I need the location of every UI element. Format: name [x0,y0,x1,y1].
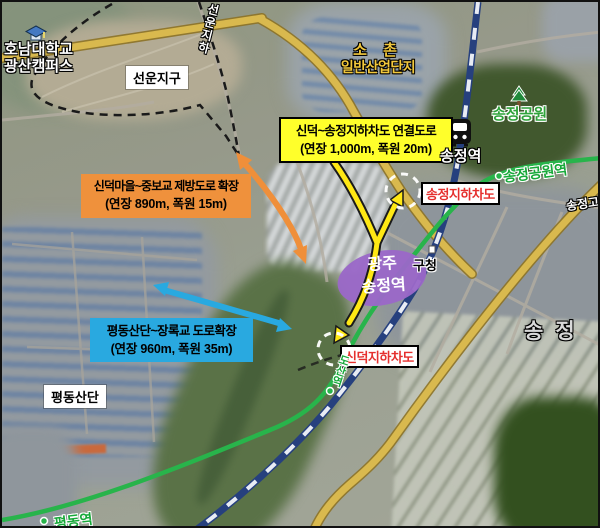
pyeongdong-road-line2: (연장 960m, 폭원 35m) [90,340,253,358]
seonun-district-label: 선운지구 [126,66,188,89]
embankment-road-line2: (연장 890m, 폭원 15m) [81,195,251,213]
pyeongdong-complex-text: 평동산단 [51,390,99,405]
embankment-road-callout: 신덕마을~중보교 제방도로 확장 (연장 890m, 폭원 15m) [81,174,251,218]
sochon-line2: 일반산업단지 [330,59,426,75]
university-label: 호남대학교 광산캠퍼스 [4,41,73,75]
gu-office-label: 구청 [413,255,437,274]
university-line1: 호남대학교 [4,41,73,58]
university-line2: 광산캠퍼스 [4,58,73,75]
map-screenshot: 호남대학교 광산캠퍼스 선운지구 선운지하 소 촌 일반산업단지 송정공원 신덕… [0,0,600,528]
sochon-complex-label: 소 촌 일반산업단지 [330,43,426,75]
pyeongdong-station-label: 평동역 [53,509,94,528]
songjeong-station-text: 송정역 [440,148,481,165]
graduation-cap-icon [26,26,46,40]
seonun-district-text: 선운지구 [133,71,181,86]
songjeong-faint-label: 송정 [524,315,587,345]
annotation-layer [2,2,600,528]
songjeong-faint-text: 송정 [524,320,587,343]
sochon-line1: 소 촌 [330,43,426,59]
sindeok-underpass-text: 신덕지하차도 [345,350,414,365]
pyeongdong-complex-label: 평동산단 [44,385,106,408]
songjeong-station-label: 송정역 [440,145,481,166]
connect-road-line2: (연장 1,000m, 폭원 20m) [281,140,451,158]
pyeongdong-road-line1: 평동산단~장록교 도로확장 [90,322,253,340]
connect-road-callout: 신덕~송정지하차도 연결도로 (연장 1,000m, 폭원 20m) [279,117,453,163]
songjeong-park-label: 송정공원 [492,103,547,124]
pyeongdong-station-text: 평동역 [53,511,93,528]
embankment-road-line1: 신덕마을~중보교 제방도로 확장 [81,178,251,195]
blue-arrowhead-left [153,282,169,296]
songjeong-underpass-label: 송정지하차도 [421,182,500,205]
gu-office-text: 구청 [413,258,437,273]
building-icon [429,246,435,253]
songjeong-park-text: 송정공원 [492,106,547,123]
songjeong-underpass-text: 송정지하차도 [426,187,495,202]
pyeongdong-road-callout: 평동산단~장록교 도로확장 (연장 960m, 폭원 35m) [90,318,253,362]
connect-road-line1: 신덕~송정지하차도 연결도로 [281,122,451,140]
